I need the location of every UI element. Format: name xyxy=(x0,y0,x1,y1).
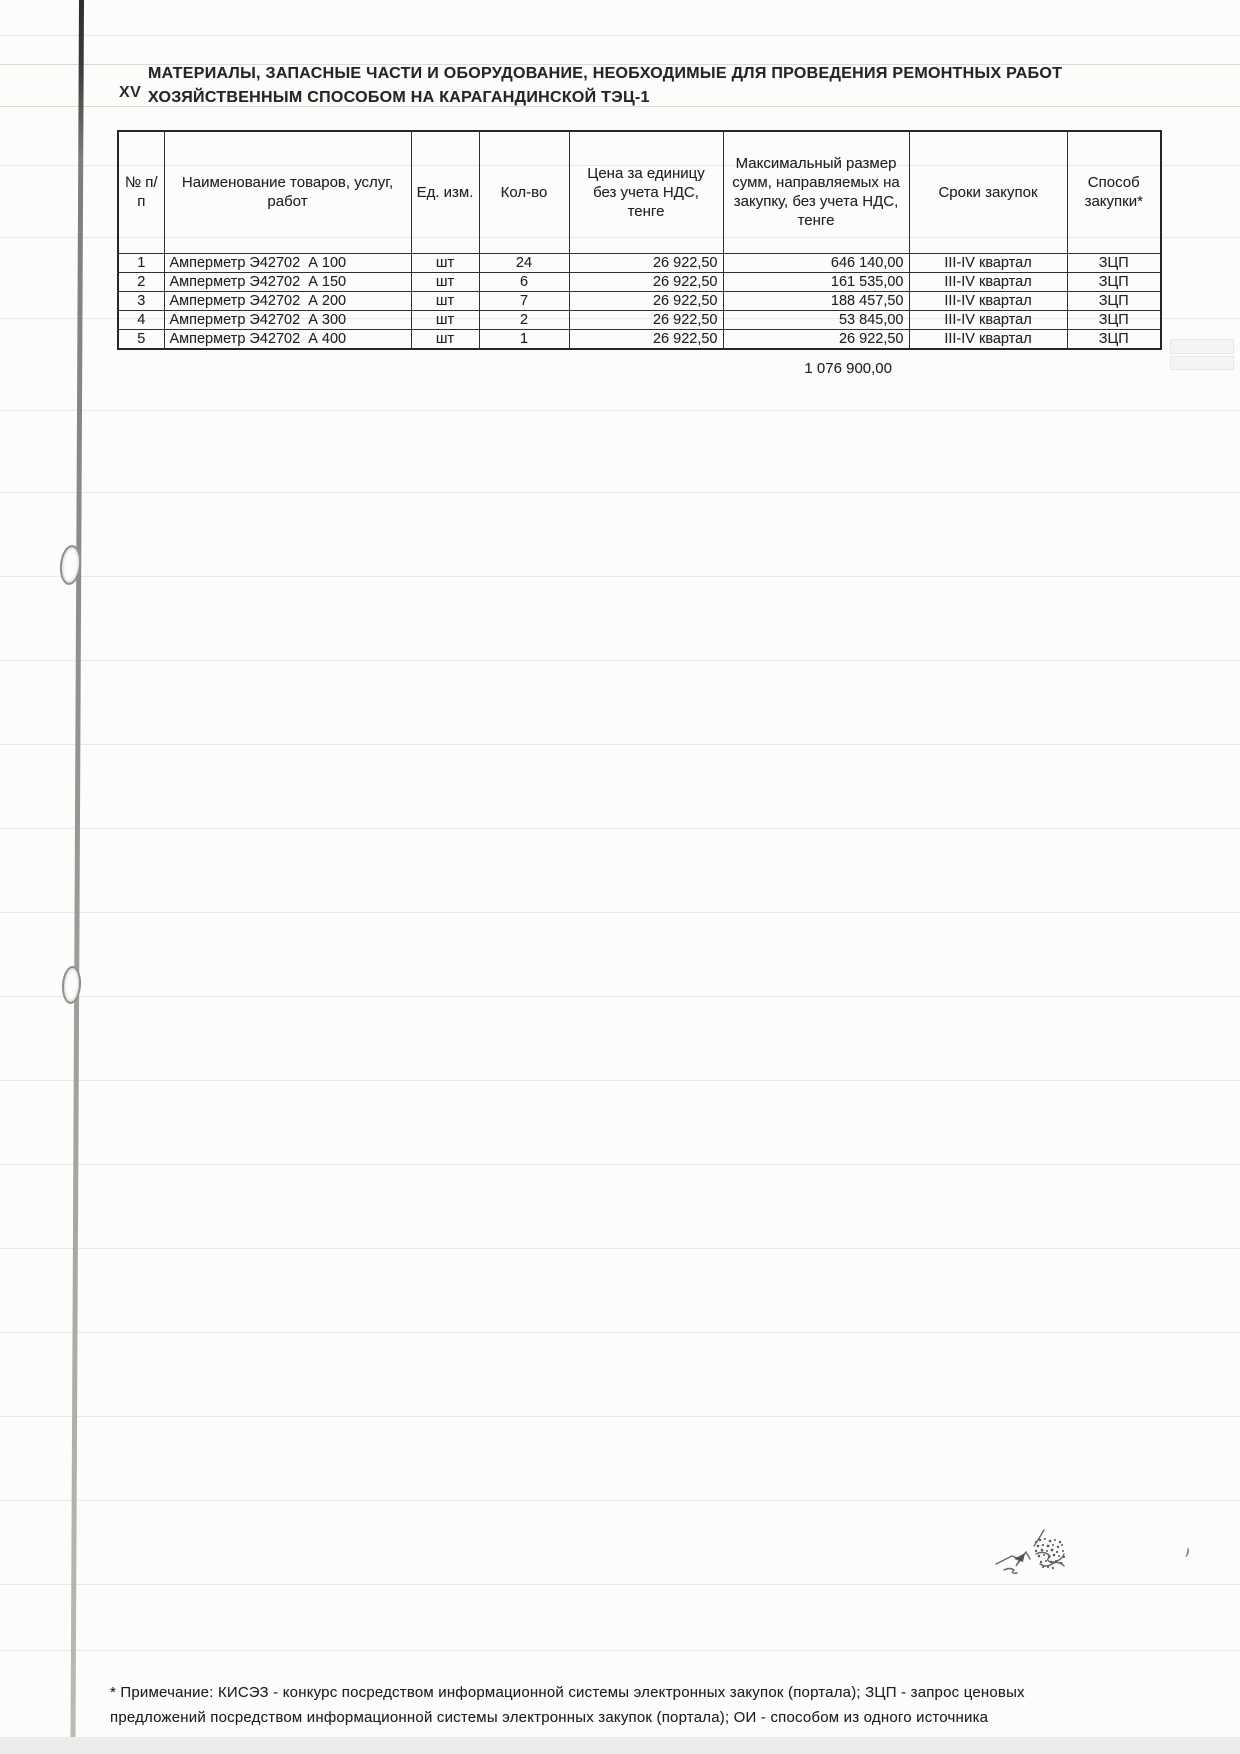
cell-period: III-IV квартал xyxy=(909,329,1067,349)
cell-name: Амперметр Э42702 А 150 xyxy=(164,272,411,291)
cell-num: 4 xyxy=(118,310,164,329)
cell-sum: 53 845,00 xyxy=(723,310,909,329)
col-header-unit: Ед. изм. xyxy=(411,131,479,253)
cell-name: Амперметр Э42702 А 400 xyxy=(164,329,411,349)
pen-scribble-mark xyxy=(990,1524,1080,1586)
cell-unit: шт xyxy=(411,329,479,349)
cell-qty: 24 xyxy=(479,253,569,272)
scanned-document-page: XV МАТЕРИАЛЫ, ЗАПАСНЫЕ ЧАСТИ И ОБОРУДОВА… xyxy=(0,0,1240,1754)
cell-price: 26 922,50 xyxy=(569,272,723,291)
bleed-through-mark xyxy=(1170,339,1234,354)
footnote: * Примечание: КИСЭЗ - конкурс посредство… xyxy=(110,1680,1120,1730)
cell-period: III-IV квартал xyxy=(909,253,1067,272)
cell-method: ЗЦП xyxy=(1067,329,1161,349)
col-header-period: Сроки закупок xyxy=(909,131,1067,253)
document-title: МАТЕРИАЛЫ, ЗАПАСНЫЕ ЧАСТИ И ОБОРУДОВАНИЕ… xyxy=(148,62,1148,110)
table-row: 5 Амперметр Э42702 А 400 шт 1 26 922,50 … xyxy=(118,329,1161,349)
cell-sum: 646 140,00 xyxy=(723,253,909,272)
document-title-line1: МАТЕРИАЛЫ, ЗАПАСНЫЕ ЧАСТИ И ОБОРУДОВАНИЕ… xyxy=(148,62,1148,86)
cell-price: 26 922,50 xyxy=(569,329,723,349)
cell-num: 2 xyxy=(118,272,164,291)
cell-unit: шт xyxy=(411,272,479,291)
footnote-line1: * Примечание: КИСЭЗ - конкурс посредство… xyxy=(110,1680,1120,1705)
cell-sum: 188 457,50 xyxy=(723,291,909,310)
scan-bottom-edge xyxy=(0,1737,1240,1754)
cell-method: ЗЦП xyxy=(1067,253,1161,272)
cell-price: 26 922,50 xyxy=(569,310,723,329)
scan-edge-line xyxy=(71,0,84,1738)
table-row: 3 Амперметр Э42702 А 200 шт 7 26 922,50 … xyxy=(118,291,1161,310)
cell-period: III-IV квартал xyxy=(909,272,1067,291)
cell-num: 1 xyxy=(118,253,164,272)
col-header-num: № п/п xyxy=(118,131,164,253)
cell-period: III-IV квартал xyxy=(909,291,1067,310)
table-row: 1 Амперметр Э42702 А 100 шт 24 26 922,50… xyxy=(118,253,1161,272)
table-header-row: № п/п Наименование товаров, услуг, работ… xyxy=(118,131,1161,253)
cell-method: ЗЦП xyxy=(1067,272,1161,291)
cell-period: III-IV квартал xyxy=(909,310,1067,329)
cell-unit: шт xyxy=(411,310,479,329)
cell-unit: шт xyxy=(411,253,479,272)
cell-qty: 7 xyxy=(479,291,569,310)
cell-method: ЗЦП xyxy=(1067,291,1161,310)
col-header-method: Способ закупки* xyxy=(1067,131,1161,253)
footnote-line2: предложений посредством информационной с… xyxy=(110,1705,1120,1730)
table-row: 4 Амперметр Э42702 А 300 шт 2 26 922,50 … xyxy=(118,310,1161,329)
cell-num: 5 xyxy=(118,329,164,349)
cell-sum: 161 535,00 xyxy=(723,272,909,291)
cell-qty: 1 xyxy=(479,329,569,349)
cell-price: 26 922,50 xyxy=(569,291,723,310)
col-header-name: Наименование товаров, услуг, работ xyxy=(164,131,411,253)
col-header-qty: Кол-во xyxy=(479,131,569,253)
cell-method: ЗЦП xyxy=(1067,310,1161,329)
procurement-table: № п/п Наименование товаров, услуг, работ… xyxy=(117,130,1162,350)
col-header-sum: Максимальный размер сумм, направляемых н… xyxy=(723,131,909,253)
table-row: 2 Амперметр Э42702 А 150 шт 6 26 922,50 … xyxy=(118,272,1161,291)
cell-qty: 6 xyxy=(479,272,569,291)
total-sum: 1 076 900,00 xyxy=(600,360,892,377)
cell-qty: 2 xyxy=(479,310,569,329)
small-ink-mark xyxy=(1182,1546,1190,1557)
bleed-through-mark xyxy=(1170,356,1234,370)
document-title-line2: ХОЗЯЙСТВЕННЫМ СПОСОБОМ НА КАРАГАНДИНСКОЙ… xyxy=(148,86,1148,110)
cell-name: Амперметр Э42702 А 300 xyxy=(164,310,411,329)
col-header-price: Цена за единицу без учета НДС, тенге xyxy=(569,131,723,253)
cell-num: 3 xyxy=(118,291,164,310)
cell-unit: шт xyxy=(411,291,479,310)
cell-name: Амперметр Э42702 А 100 xyxy=(164,253,411,272)
cell-price: 26 922,50 xyxy=(569,253,723,272)
section-number: XV xyxy=(119,84,141,102)
cell-name: Амперметр Э42702 А 200 xyxy=(164,291,411,310)
cell-sum: 26 922,50 xyxy=(723,329,909,349)
